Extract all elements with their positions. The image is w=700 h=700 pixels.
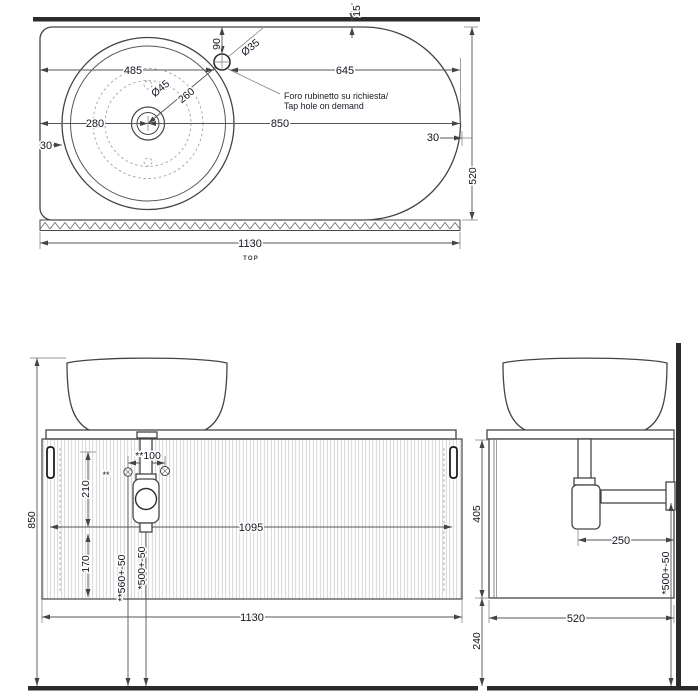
side-view: 405 240 250 *500+-50 520 (471, 343, 698, 691)
dim-1095-label: 1095 (239, 522, 263, 534)
dim-30-right-label: 30 (427, 132, 439, 144)
trap-body-side (572, 485, 600, 529)
dim-1130-front-label: 1130 (240, 612, 264, 624)
dim-485-label: 485 (124, 65, 142, 77)
fluted-front-edge (40, 220, 460, 231)
wall-flange (666, 482, 675, 510)
trap-collar-side (574, 478, 595, 485)
dim-90-label: 90 (211, 38, 223, 50)
trap-face-circle (136, 489, 157, 510)
handle-left (47, 447, 54, 478)
technical-drawing-page: 15 485 645 90 Ø35 Ø45 260 280 850 30 30 … (0, 0, 700, 700)
dim-30-left-label: 30 (40, 140, 52, 152)
dim-1130-top-label: 1130 (238, 238, 262, 250)
dim-100-label: **100 (135, 450, 161, 462)
dim-500-side-label: *500+-50 (660, 551, 672, 594)
supply-connection-left-icon (124, 468, 132, 476)
floor-line-right (487, 686, 698, 691)
dim-850h-label: 850 (26, 511, 38, 529)
supply-connection-right-icon (161, 467, 170, 476)
wall-line-side-view (676, 343, 681, 690)
drain-stub-front (137, 432, 157, 438)
handle-right (450, 447, 457, 478)
dim-15-label: 15 (351, 5, 363, 17)
basin-side-profile (503, 358, 667, 431)
dim-850-label: 850 (271, 118, 289, 130)
dim-520-top-label: 520 (467, 167, 479, 185)
waste-pipe-horizontal (601, 490, 667, 503)
dim-405-label: 405 (471, 505, 483, 523)
front-view: 850 210 170 **100 ** **560+-50 *500+-50 … (26, 358, 478, 691)
dim-560-label: **560+-50 (116, 554, 128, 601)
dim-170-label: 170 (80, 555, 92, 573)
dim-280-label: 280 (86, 118, 104, 130)
floor-line-left (28, 686, 478, 691)
dim-520-side-label: 520 (567, 613, 585, 625)
basin-front-profile (67, 358, 227, 431)
wall-line-top-view (33, 17, 480, 22)
dim-500-front-label: *500+-50 (136, 546, 148, 589)
trap-tail-front (140, 523, 152, 532)
trap-pipe-side (578, 439, 591, 479)
drawing-svg: 15 485 645 90 Ø35 Ø45 260 280 850 30 30 … (0, 0, 700, 700)
dim-645-label: 645 (336, 65, 354, 77)
cabinet-front (42, 439, 462, 599)
note-line-2: Tap hole on demand (284, 101, 364, 111)
top-view: 15 485 645 90 Ø35 Ø45 260 280 850 30 30 … (33, 3, 480, 262)
note-line-1: Foro rubinetto su richiesta/ (284, 91, 389, 101)
dim-250-label: 250 (612, 535, 630, 547)
countertop-front (46, 430, 456, 439)
dim-240-label: 240 (471, 632, 483, 650)
countertop-side (487, 430, 674, 439)
footnote-marks: ** (102, 470, 110, 480)
view-label-top: TOP (243, 256, 259, 262)
dim-210-label: 210 (80, 480, 92, 498)
